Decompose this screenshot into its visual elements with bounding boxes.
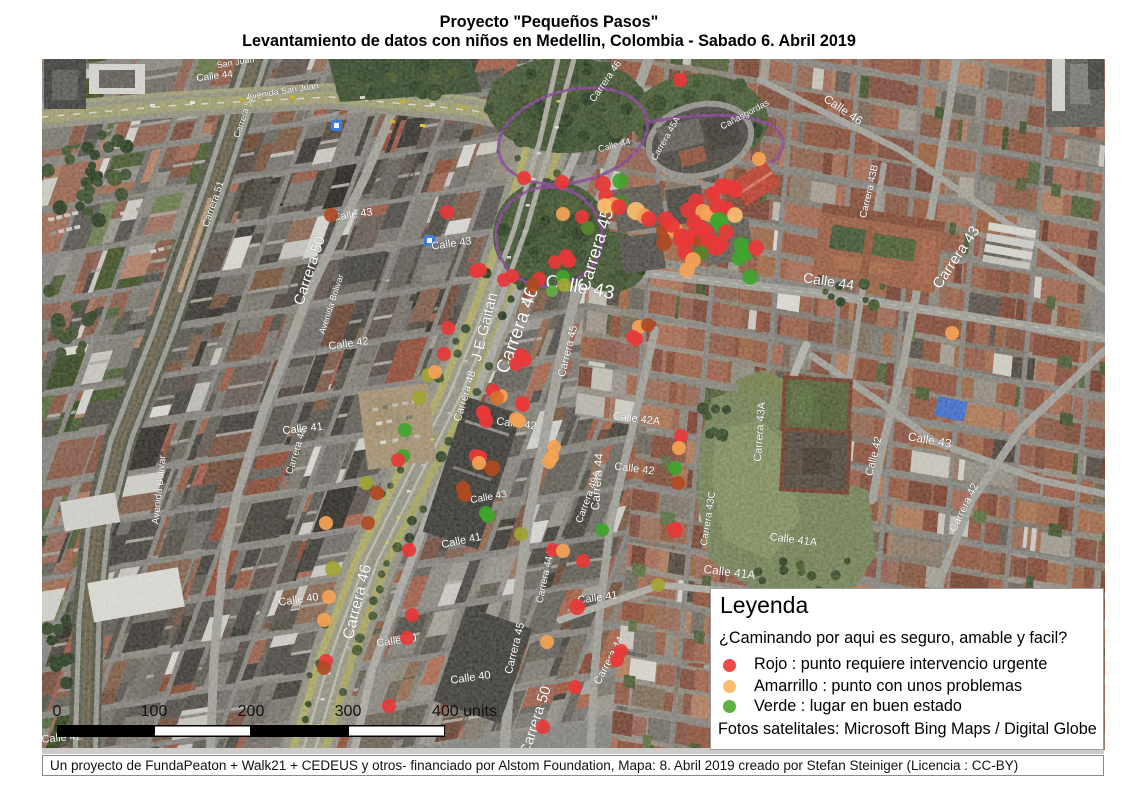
svg-text:300: 300: [335, 703, 362, 720]
svg-text:0: 0: [53, 703, 62, 720]
svg-text:100: 100: [141, 703, 168, 720]
svg-text:400 units: 400 units: [432, 703, 497, 720]
svg-text:200: 200: [238, 703, 265, 720]
